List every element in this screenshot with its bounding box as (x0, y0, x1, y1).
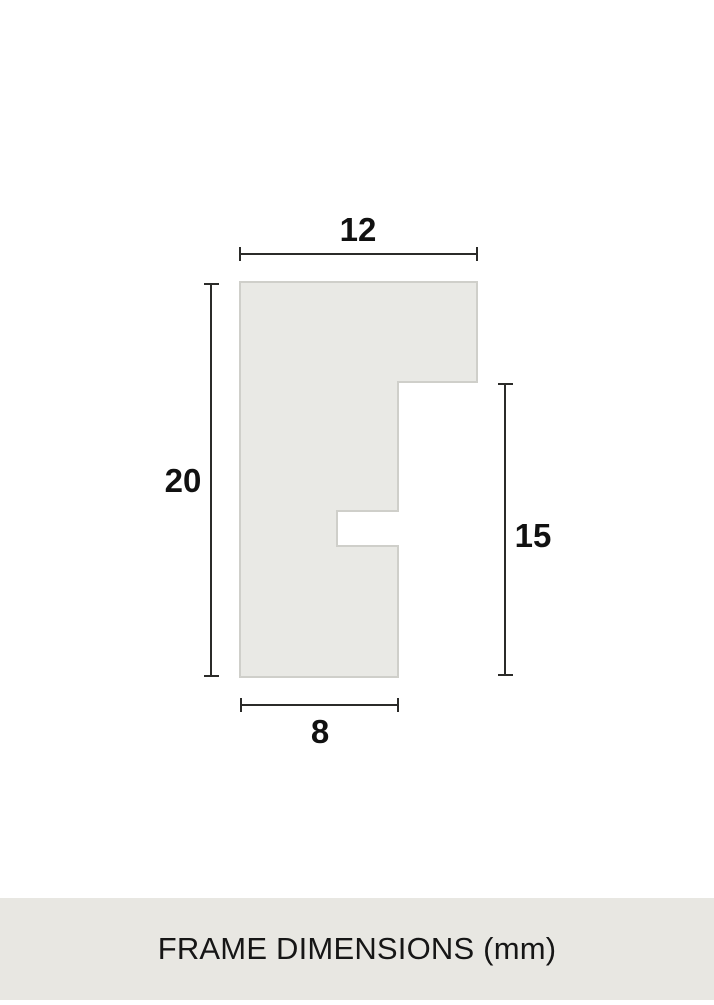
frame-dimension-diagram: 12 20 15 8 FRAME DIMENSIONS (mm) (0, 0, 714, 1000)
footer-caption-bar: FRAME DIMENSIONS (mm) (0, 898, 714, 1000)
dimension-label-right-height: 15 (515, 517, 552, 554)
frame-profile (240, 282, 477, 677)
frame-profile-shape (240, 282, 477, 677)
dimension-label-top-width: 12 (340, 211, 377, 248)
dimension-label-bottom-width: 8 (311, 713, 329, 750)
footer-caption-label: FRAME DIMENSIONS (mm) (158, 931, 557, 967)
diagram-canvas: 12 20 15 8 (0, 0, 714, 1000)
dimension-bottom-width (241, 698, 398, 712)
dimension-left-height (204, 284, 219, 676)
dimension-top-width (240, 247, 477, 261)
dimension-label-left-height: 20 (165, 462, 202, 499)
dimension-right-height (498, 384, 513, 675)
page: { "diagram": { "title": "frame-profile-c… (0, 0, 714, 1000)
